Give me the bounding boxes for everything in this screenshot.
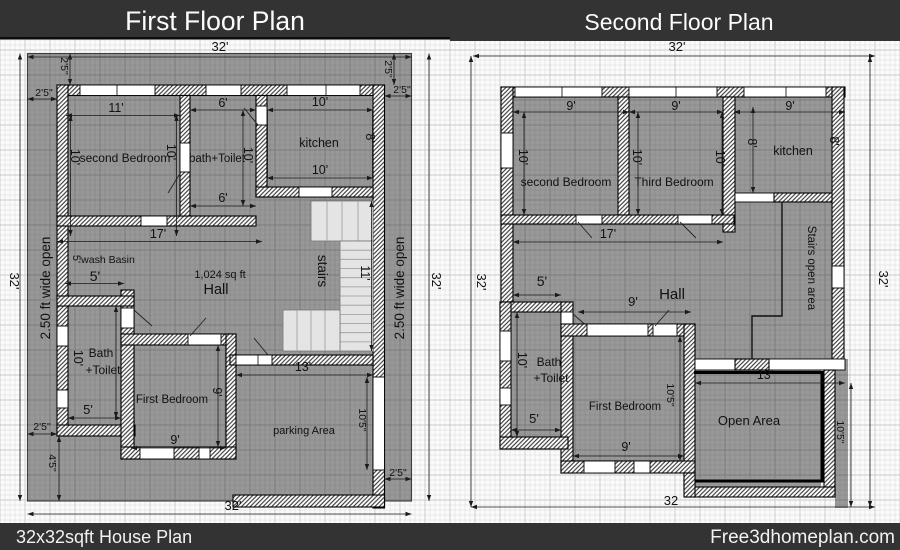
svg-text:8': 8' — [363, 133, 377, 142]
svg-text:6': 6' — [218, 96, 227, 110]
svg-text:4'5": 4'5" — [46, 454, 58, 472]
svg-text:2.50 ft wide open: 2.50 ft wide open — [38, 237, 53, 340]
svg-text:10': 10' — [516, 149, 530, 165]
svg-text:stairs: stairs — [315, 255, 330, 288]
svg-text:Free3dhomeplan.com: Free3dhomeplan.com — [710, 527, 895, 548]
svg-text:Bath: Bath — [89, 346, 114, 360]
svg-text:Open Area: Open Area — [718, 413, 781, 428]
svg-text:9': 9' — [621, 440, 630, 454]
svg-text:Stairs open area: Stairs open area — [805, 226, 817, 311]
svg-text:kitchen: kitchen — [299, 136, 339, 150]
svg-text:9': 9' — [170, 433, 179, 447]
svg-text:6': 6' — [218, 191, 227, 205]
svg-text:5': 5' — [537, 273, 547, 289]
svg-text:10': 10' — [630, 149, 644, 165]
svg-text:Hall: Hall — [659, 286, 685, 303]
svg-text:10': 10' — [71, 350, 85, 366]
svg-text:Second Floor Plan: Second Floor Plan — [584, 9, 773, 35]
svg-text:second Bedroom: second Bedroom — [80, 151, 171, 165]
svg-text:32x32sqft House Plan: 32x32sqft House Plan — [16, 527, 192, 547]
svg-text:5': 5' — [90, 268, 100, 284]
svg-text:17': 17' — [150, 227, 166, 241]
svg-text:2'5": 2'5" — [382, 60, 394, 78]
svg-text:8': 8' — [827, 136, 841, 145]
svg-text:+Toilet: +Toilet — [533, 371, 569, 385]
svg-text:First Bedroom: First Bedroom — [589, 401, 661, 413]
svg-text:2'5": 2'5" — [389, 467, 407, 479]
svg-text:10': 10' — [515, 352, 529, 368]
svg-text:Hall: Hall — [204, 282, 229, 298]
svg-text:10'5": 10'5" — [356, 408, 368, 432]
svg-text:Bath: Bath — [537, 355, 562, 369]
svg-text:17': 17' — [600, 227, 616, 241]
svg-text:First Bedroom: First Bedroom — [136, 394, 208, 406]
svg-text:10'5": 10'5" — [834, 420, 846, 444]
svg-text:32': 32' — [7, 273, 22, 290]
svg-text:9': 9' — [785, 99, 794, 113]
svg-text:second Bedroom: second Bedroom — [521, 175, 612, 189]
svg-text:9': 9' — [671, 99, 680, 113]
svg-text:2'5": 2'5" — [58, 57, 70, 75]
svg-text:11': 11' — [108, 101, 123, 115]
svg-text:10': 10' — [241, 147, 255, 163]
svg-text:8': 8' — [745, 138, 759, 147]
svg-text:2'5": 2'5" — [35, 87, 53, 99]
svg-text:10': 10' — [713, 150, 727, 166]
svg-text:32': 32' — [429, 273, 444, 290]
svg-text:32': 32' — [876, 271, 891, 288]
svg-text:10'5": 10'5" — [664, 383, 676, 407]
svg-text:32: 32 — [664, 493, 678, 508]
svg-text:9': 9' — [210, 387, 224, 396]
svg-text:13': 13' — [295, 360, 311, 374]
svg-text:11': 11' — [358, 265, 372, 280]
svg-text:32': 32' — [669, 39, 686, 54]
svg-text:wash Basin: wash Basin — [80, 254, 135, 266]
svg-text:kitchen: kitchen — [773, 144, 813, 158]
svg-text:1,024 sq ft: 1,024 sq ft — [194, 269, 245, 281]
svg-text:5': 5' — [70, 255, 82, 263]
svg-text:2'5": 2'5" — [33, 421, 51, 433]
svg-text:10': 10' — [312, 163, 328, 177]
svg-text:First Floor Plan: First Floor Plan — [125, 6, 305, 36]
svg-text:parking Area: parking Area — [273, 425, 336, 437]
svg-text:10': 10' — [312, 95, 328, 109]
svg-text:bath+Toilet: bath+Toilet — [189, 153, 246, 165]
svg-text:9': 9' — [628, 294, 638, 309]
svg-text:10': 10' — [164, 144, 178, 160]
svg-text:2.50 ft wide open: 2.50 ft wide open — [392, 237, 407, 340]
svg-text:Third Bedroom: Third Bedroom — [634, 175, 713, 189]
svg-text:5': 5' — [529, 411, 539, 426]
svg-text:32': 32' — [474, 274, 489, 291]
svg-text:13': 13' — [757, 368, 773, 382]
svg-text:5': 5' — [83, 402, 93, 417]
svg-text:2'5": 2'5" — [393, 84, 411, 96]
svg-text:10': 10' — [68, 149, 82, 165]
svg-text:9': 9' — [566, 99, 575, 113]
svg-text:32': 32' — [212, 39, 229, 54]
svg-text:32': 32' — [225, 498, 242, 513]
